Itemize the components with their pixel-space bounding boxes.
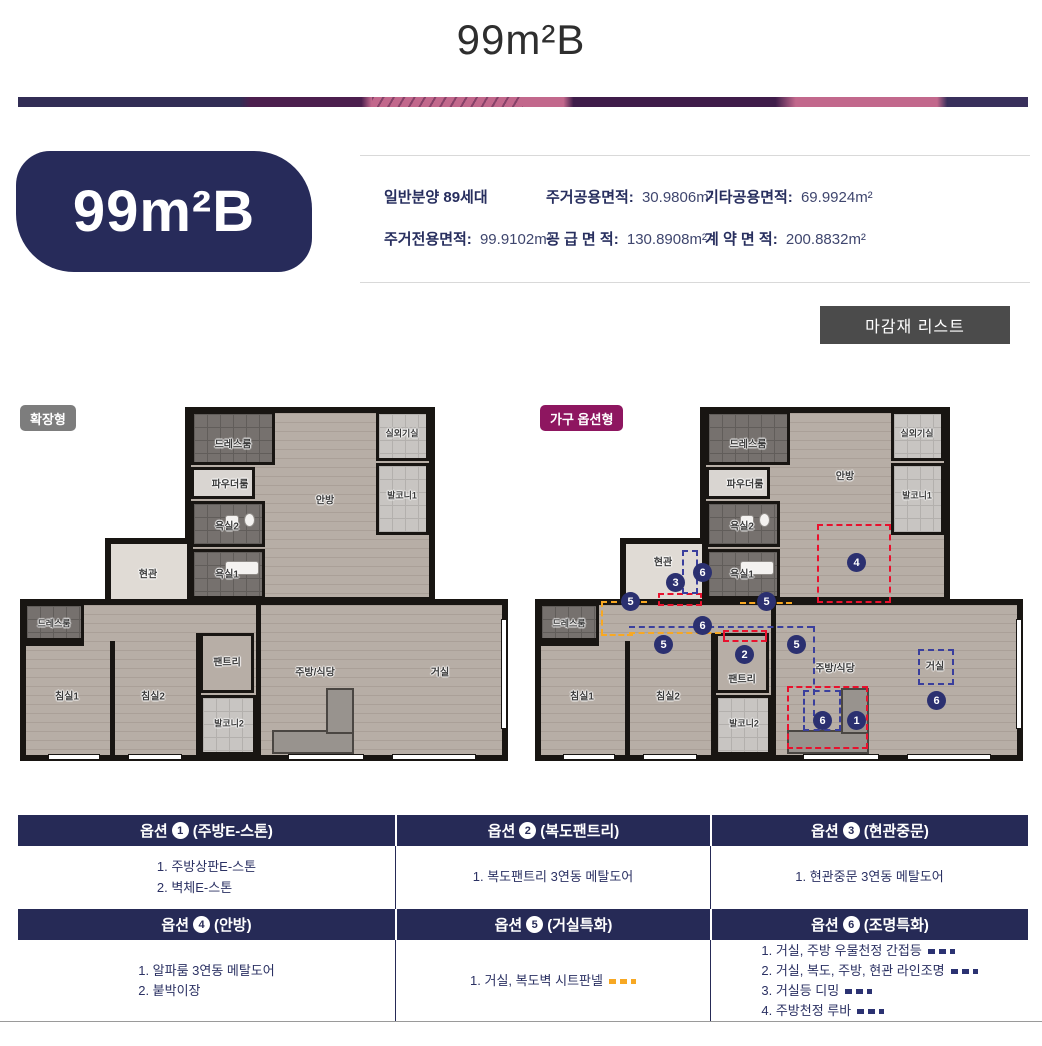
info-other-common-area: 기타공용면적: 69.9924m² — [705, 186, 873, 207]
info-units-label: 일반분양 — [384, 189, 439, 206]
banner-hatch-pattern — [372, 97, 524, 107]
kitchen-counter-side — [326, 688, 354, 734]
dash-blue-corridor-h — [629, 626, 813, 628]
wall-bed1-bed2 — [625, 641, 630, 755]
option-cell-4: 1. 알파룸 3연동 메탈도어 2. 붙박이장 — [18, 940, 395, 1022]
marker-option-3: 3 — [666, 573, 685, 592]
window-bed2 — [643, 754, 697, 760]
info-common-area: 주거공용면적: 30.9806m² — [546, 186, 714, 207]
dash-orange-corridor-3 — [601, 634, 633, 636]
option-cell-3: 1. 현관중문 3연동 메탈도어 — [710, 846, 1028, 909]
label-bath1: 욕실1 — [730, 566, 754, 581]
marker-option-5-left: 5 — [621, 592, 640, 611]
unit-type-badge: 99m²B — [16, 151, 312, 272]
decorative-banner — [18, 97, 1028, 107]
label-powder: 파우더룸 — [727, 476, 764, 491]
marker-option-2: 2 — [735, 645, 754, 664]
floorplan-expanded: 확장형 드레스룸 파우더룸 욕실2 안방 실외기실 발코니1 현관 욕실1 드레… — [20, 403, 512, 771]
unit-info-panel: 일반분양 89세대 주거공용면적: 30.9806m² 기타공용면적: 69.9… — [360, 155, 1030, 283]
marker-option-5-kitchen: 5 — [787, 635, 806, 654]
label-living: 거실 — [431, 664, 449, 679]
bottom-divider — [0, 1021, 1042, 1022]
option-header-3: 옵션 3 (현관중문) — [710, 815, 1028, 846]
label-bed2: 침실2 — [656, 688, 680, 703]
plan-lower-block — [20, 599, 508, 761]
option-cell-6: 1. 거실, 주방 우물천정 간접등 2. 거실, 복도, 주방, 현관 라인조… — [710, 940, 1028, 1022]
option-number-badge: 1 — [172, 822, 189, 839]
navy-dash-legend — [951, 969, 978, 974]
marker-option-6-corridor: 6 — [693, 616, 712, 635]
option-header-6: 옵션 6 (조명특화) — [710, 909, 1028, 940]
label-powder: 파우더룸 — [212, 476, 249, 491]
label-bath2: 욕실2 — [730, 518, 754, 533]
window-living-bottom — [907, 754, 991, 760]
bath2-toilet — [759, 513, 770, 527]
marker-option-6-living: 6 — [927, 691, 946, 710]
label-balcony1: 발코니1 — [387, 489, 417, 502]
label-dressroom-top: 드레스룸 — [730, 436, 767, 451]
option-number-badge: 4 — [193, 916, 210, 933]
option-number-badge: 5 — [526, 916, 543, 933]
label-pantry: 팬트리 — [213, 654, 241, 669]
label-outdoor-unit: 실외기실 — [385, 427, 418, 440]
info-units: 일반분양 89세대 — [384, 186, 488, 207]
label-bath1: 욕실1 — [215, 566, 239, 581]
info-supply-area: 공 급 면 적: 130.8908m² — [546, 228, 707, 249]
option-header-4: 옵션 4 (안방) — [18, 909, 395, 940]
option-number-badge: 6 — [843, 916, 860, 933]
options-table: 옵션 1 (주방E-스톤) 옵션 2 (복도팬트리) 옵션 3 (현관중문) 1… — [18, 815, 1028, 1022]
option-header-5: 옵션 5 (거실특화) — [395, 909, 710, 940]
info-units-value: 89세대 — [443, 189, 487, 206]
label-pantry: 팬트리 — [728, 671, 756, 686]
window-living-right — [501, 619, 507, 729]
options-header-row-2: 옵션 4 (안방) 옵션 5 (거실특화) 옵션 6 (조명특화) — [18, 909, 1028, 940]
label-anbang: 안방 — [836, 468, 854, 483]
label-balcony2: 발코니2 — [729, 717, 759, 730]
label-balcony2: 발코니2 — [214, 717, 244, 730]
option-header-2: 옵션 2 (복도팬트리) — [395, 815, 710, 846]
wall-dress-bed1 — [24, 641, 84, 646]
option-number-badge: 2 — [519, 822, 536, 839]
label-bath2: 욕실2 — [215, 518, 239, 533]
navy-dash-legend — [845, 989, 872, 994]
page-title: 99m²B — [0, 16, 1042, 64]
label-dressroom-left: 드레스룸 — [552, 617, 585, 630]
orange-dash-legend — [609, 979, 636, 984]
marker-option-5-bath1: 5 — [757, 592, 776, 611]
label-bed1: 침실1 — [570, 688, 594, 703]
window-kitchen — [803, 754, 879, 760]
label-balcony1: 발코니1 — [902, 489, 932, 502]
window-bed1 — [48, 754, 100, 760]
options-body-row-2: 1. 알파룸 3연동 메탈도어 2. 붙박이장 1. 거실, 복도벽 시트판넬 … — [18, 940, 1028, 1022]
wall-bed2-pantry — [196, 633, 201, 755]
label-entrance: 현관 — [654, 554, 672, 569]
plan-badge-option: 가구 옵션형 — [540, 405, 623, 431]
dash-blue-living — [918, 649, 954, 685]
wall-bed2-pantry — [711, 633, 716, 755]
navy-dash-legend — [857, 1009, 884, 1014]
info-contract-area: 계 약 면 적: 200.8832m² — [705, 228, 866, 249]
marker-option-6-kitchen: 6 — [813, 711, 832, 730]
label-dressroom-top: 드레스룸 — [215, 436, 252, 451]
marker-option-1: 1 — [847, 711, 866, 730]
navy-dash-legend — [928, 949, 955, 954]
plan-badge-expanded: 확장형 — [20, 405, 76, 431]
window-kitchen — [288, 754, 364, 760]
marker-option-6-entrance: 6 — [693, 563, 712, 582]
wall-dress-bed1 — [539, 641, 599, 646]
label-dressroom-left: 드레스룸 — [37, 617, 70, 630]
window-living-right — [1016, 619, 1022, 729]
info-exclusive-area: 주거전용면적: 99.9102m² — [384, 228, 552, 249]
label-anbang: 안방 — [316, 492, 334, 507]
options-body-row-1: 1. 주방상판E-스톤 2. 벽체E-스톤 1. 복도팬트리 3연동 메탈도어 … — [18, 846, 1028, 909]
label-bed2: 침실2 — [141, 688, 165, 703]
finish-list-button[interactable]: 마감재 리스트 — [820, 306, 1010, 344]
bath2-toilet — [244, 513, 255, 527]
dash-red-pantry-door — [723, 630, 767, 642]
wall-bed1-bed2 — [110, 641, 115, 755]
dash-red-entrance-door — [658, 593, 702, 606]
option-cell-2: 1. 복도팬트리 3연동 메탈도어 — [395, 846, 710, 909]
dash-orange-corridor-2 — [601, 601, 603, 635]
window-bed2 — [128, 754, 182, 760]
marker-option-5-bed2: 5 — [654, 635, 673, 654]
label-outdoor-unit: 실외기실 — [900, 427, 933, 440]
wall-pantry-kitchen — [256, 603, 261, 755]
option-cell-1: 1. 주방상판E-스톤 2. 벽체E-스톤 — [18, 846, 395, 909]
label-kitchen: 주방/식당 — [295, 664, 335, 679]
option-cell-5: 1. 거실, 복도벽 시트판넬 — [395, 940, 710, 1022]
marker-option-4: 4 — [847, 553, 866, 572]
floorplan-option: 가구 옵션형 드레스룸 파우더룸 욕실2 안방 실외기실 발코니1 현관 욕실1… — [535, 403, 1027, 771]
option-header-1: 옵션 1 (주방E-스톤) — [18, 815, 395, 846]
label-kitchen: 주방/식당 — [815, 660, 855, 675]
label-bed1: 침실1 — [55, 688, 79, 703]
window-bed1 — [563, 754, 615, 760]
window-living-bottom — [392, 754, 476, 760]
option-number-badge: 3 — [843, 822, 860, 839]
options-header-row-1: 옵션 1 (주방E-스톤) 옵션 2 (복도팬트리) 옵션 3 (현관중문) — [18, 815, 1028, 846]
label-entrance: 현관 — [139, 566, 157, 581]
